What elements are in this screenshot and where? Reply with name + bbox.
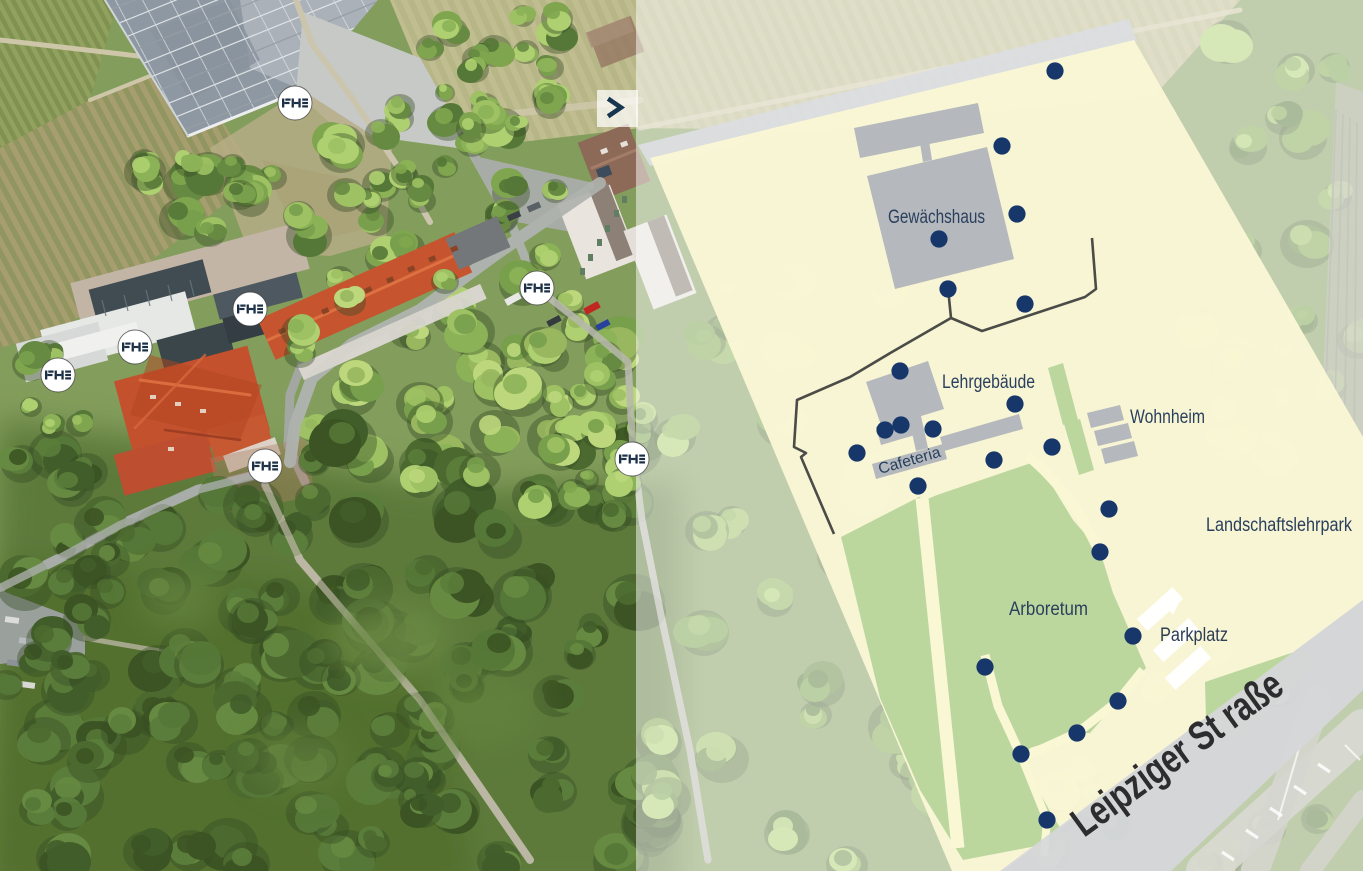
svg-text:Arboretum: Arboretum: [1009, 599, 1088, 620]
svg-text:Parkplatz: Parkplatz: [1160, 625, 1228, 646]
svg-text:Lehrgebäude: Lehrgebäude: [942, 372, 1035, 393]
svg-text:Wohnheim: Wohnheim: [1130, 407, 1205, 428]
svg-text:Landschaftslehrpark: Landschaftslehrpark: [1206, 515, 1352, 536]
svg-text:Gewächshaus: Gewächshaus: [888, 207, 985, 228]
